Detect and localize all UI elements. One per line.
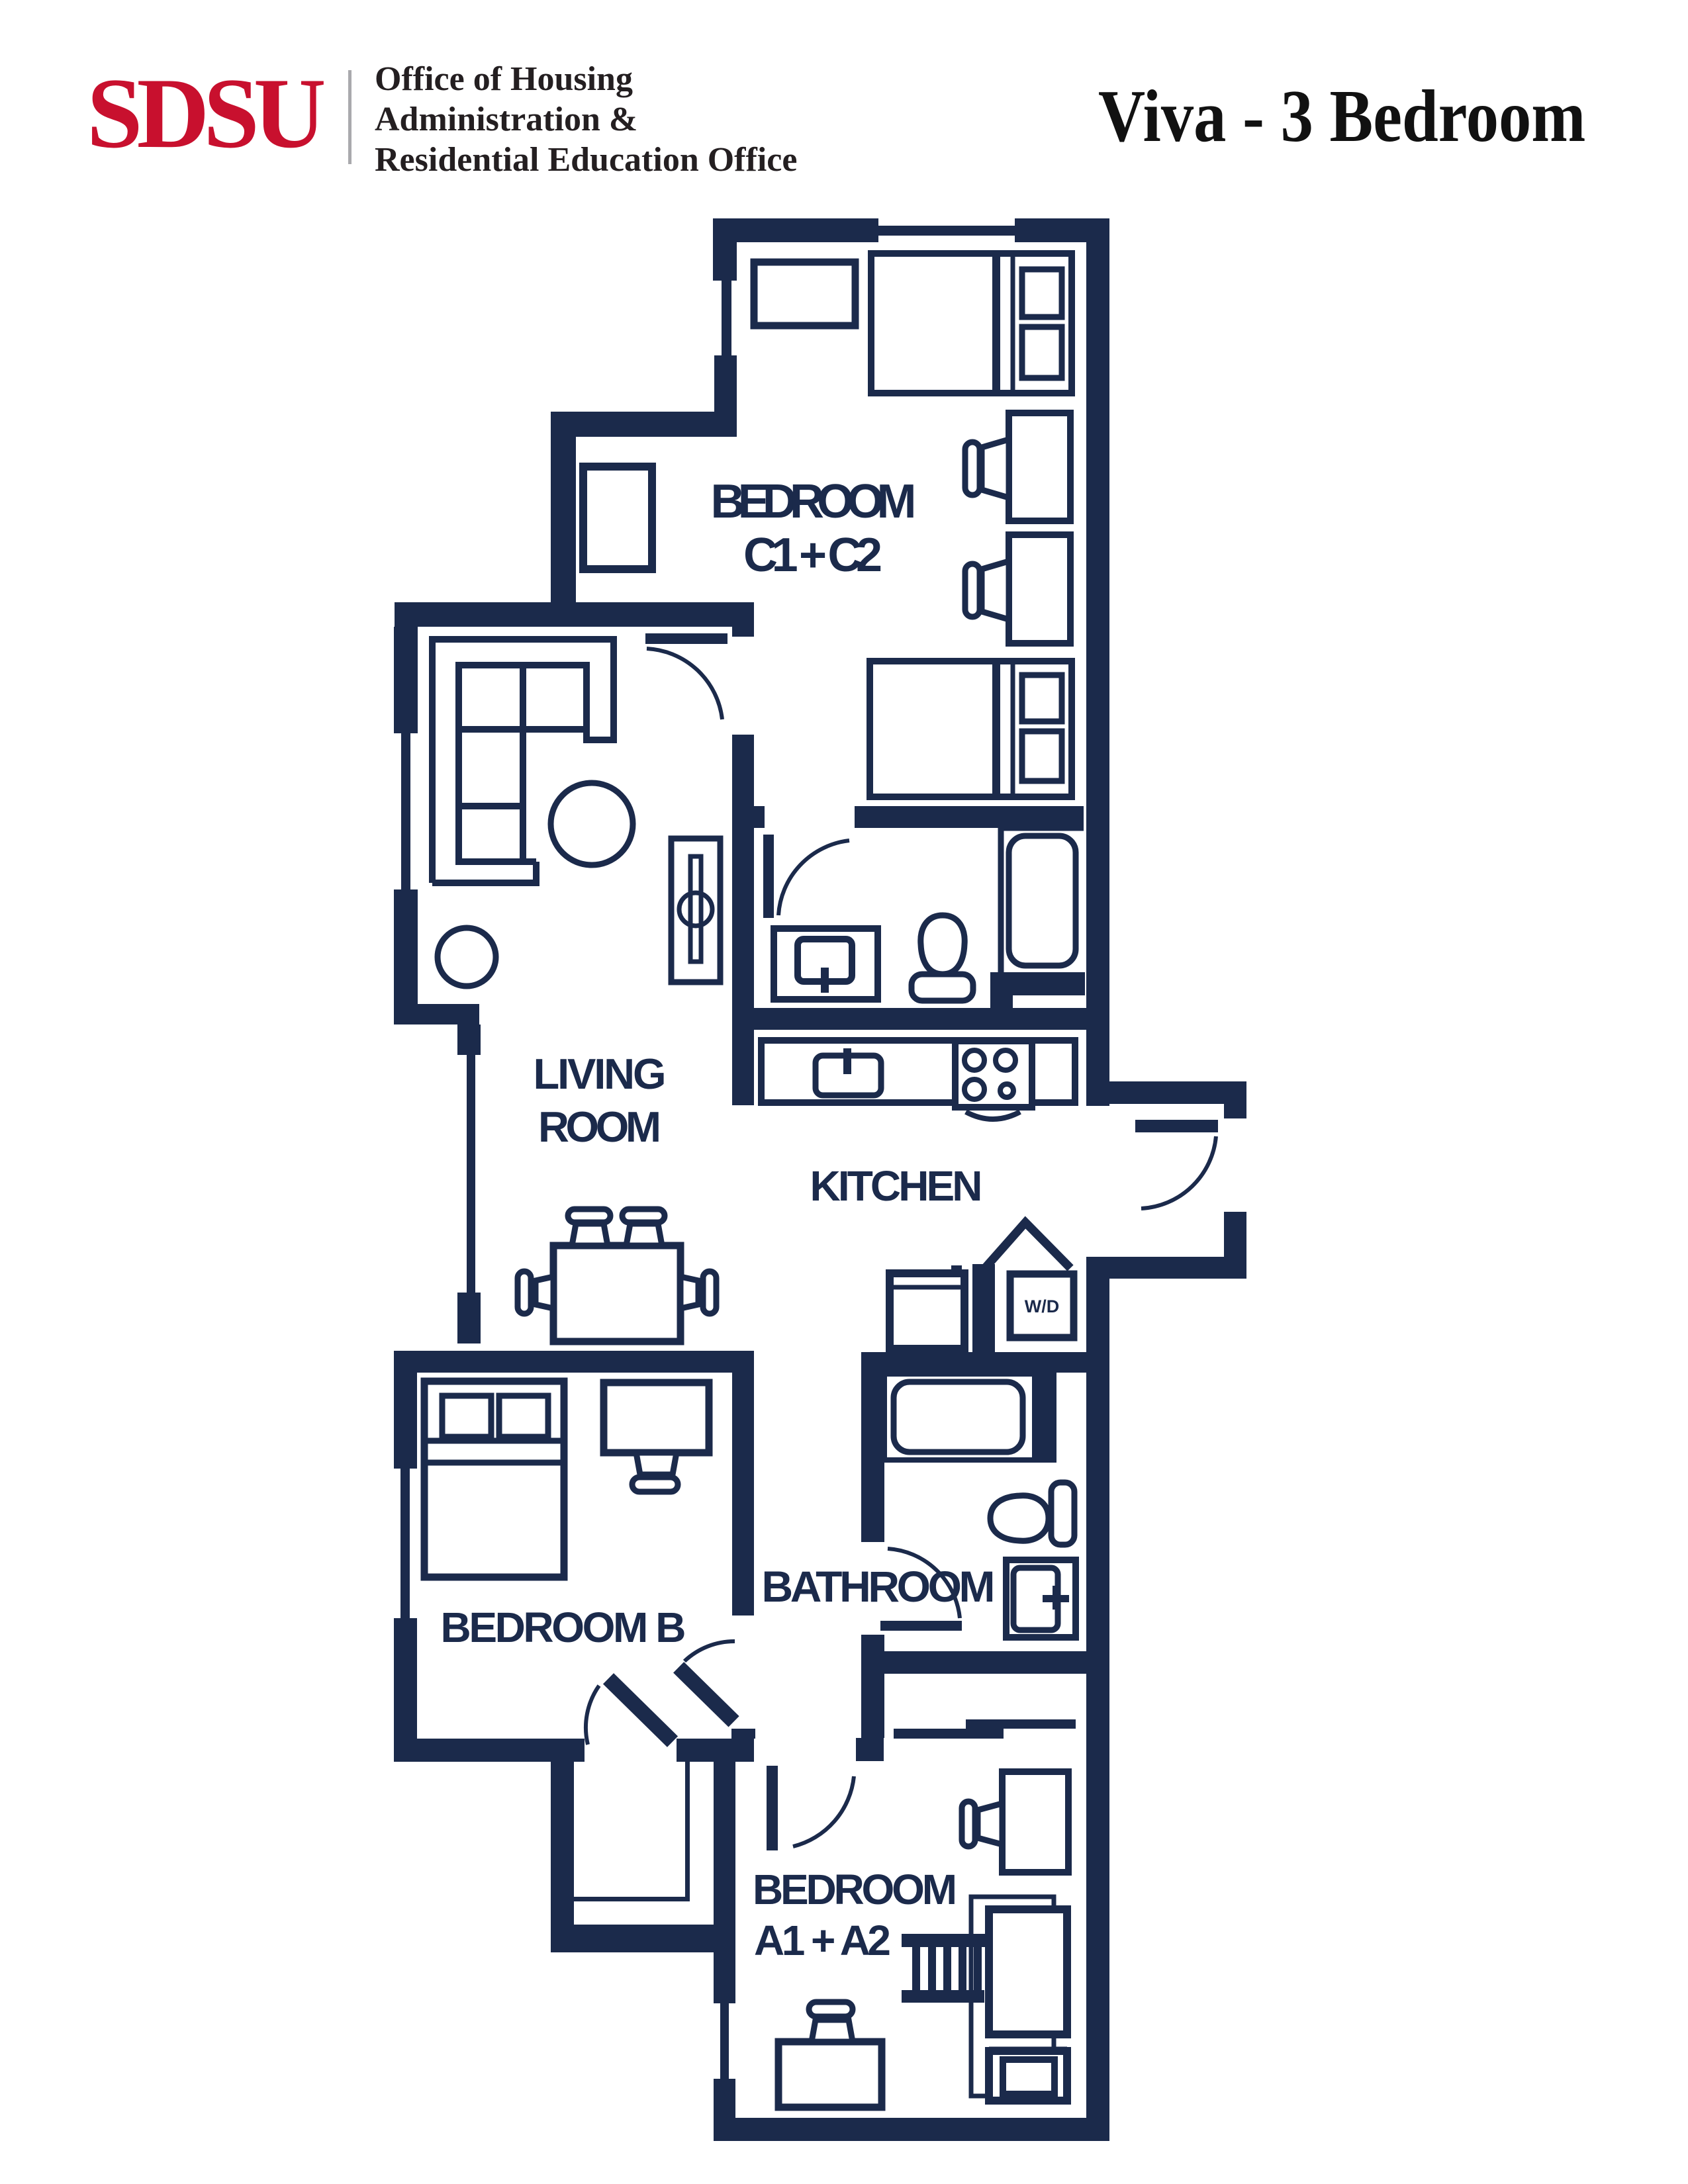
svg-text:BEDROOM: BEDROOM [711,475,917,528]
svg-text:A1 + A2: A1 + A2 [754,1917,891,1964]
svg-text:BEDROOM: BEDROOM [753,1866,957,1913]
svg-text:C1 + C2: C1 + C2 [743,529,882,582]
svg-text:LIVING: LIVING [534,1050,667,1098]
svg-text:KITCHEN: KITCHEN [810,1162,983,1210]
svg-text:ROOM: ROOM [538,1103,661,1151]
svg-text:BEDROOM B: BEDROOM B [441,1604,686,1651]
svg-text:W/D: W/D [1025,1297,1059,1316]
svg-text:BATHROOM: BATHROOM [762,1562,996,1611]
